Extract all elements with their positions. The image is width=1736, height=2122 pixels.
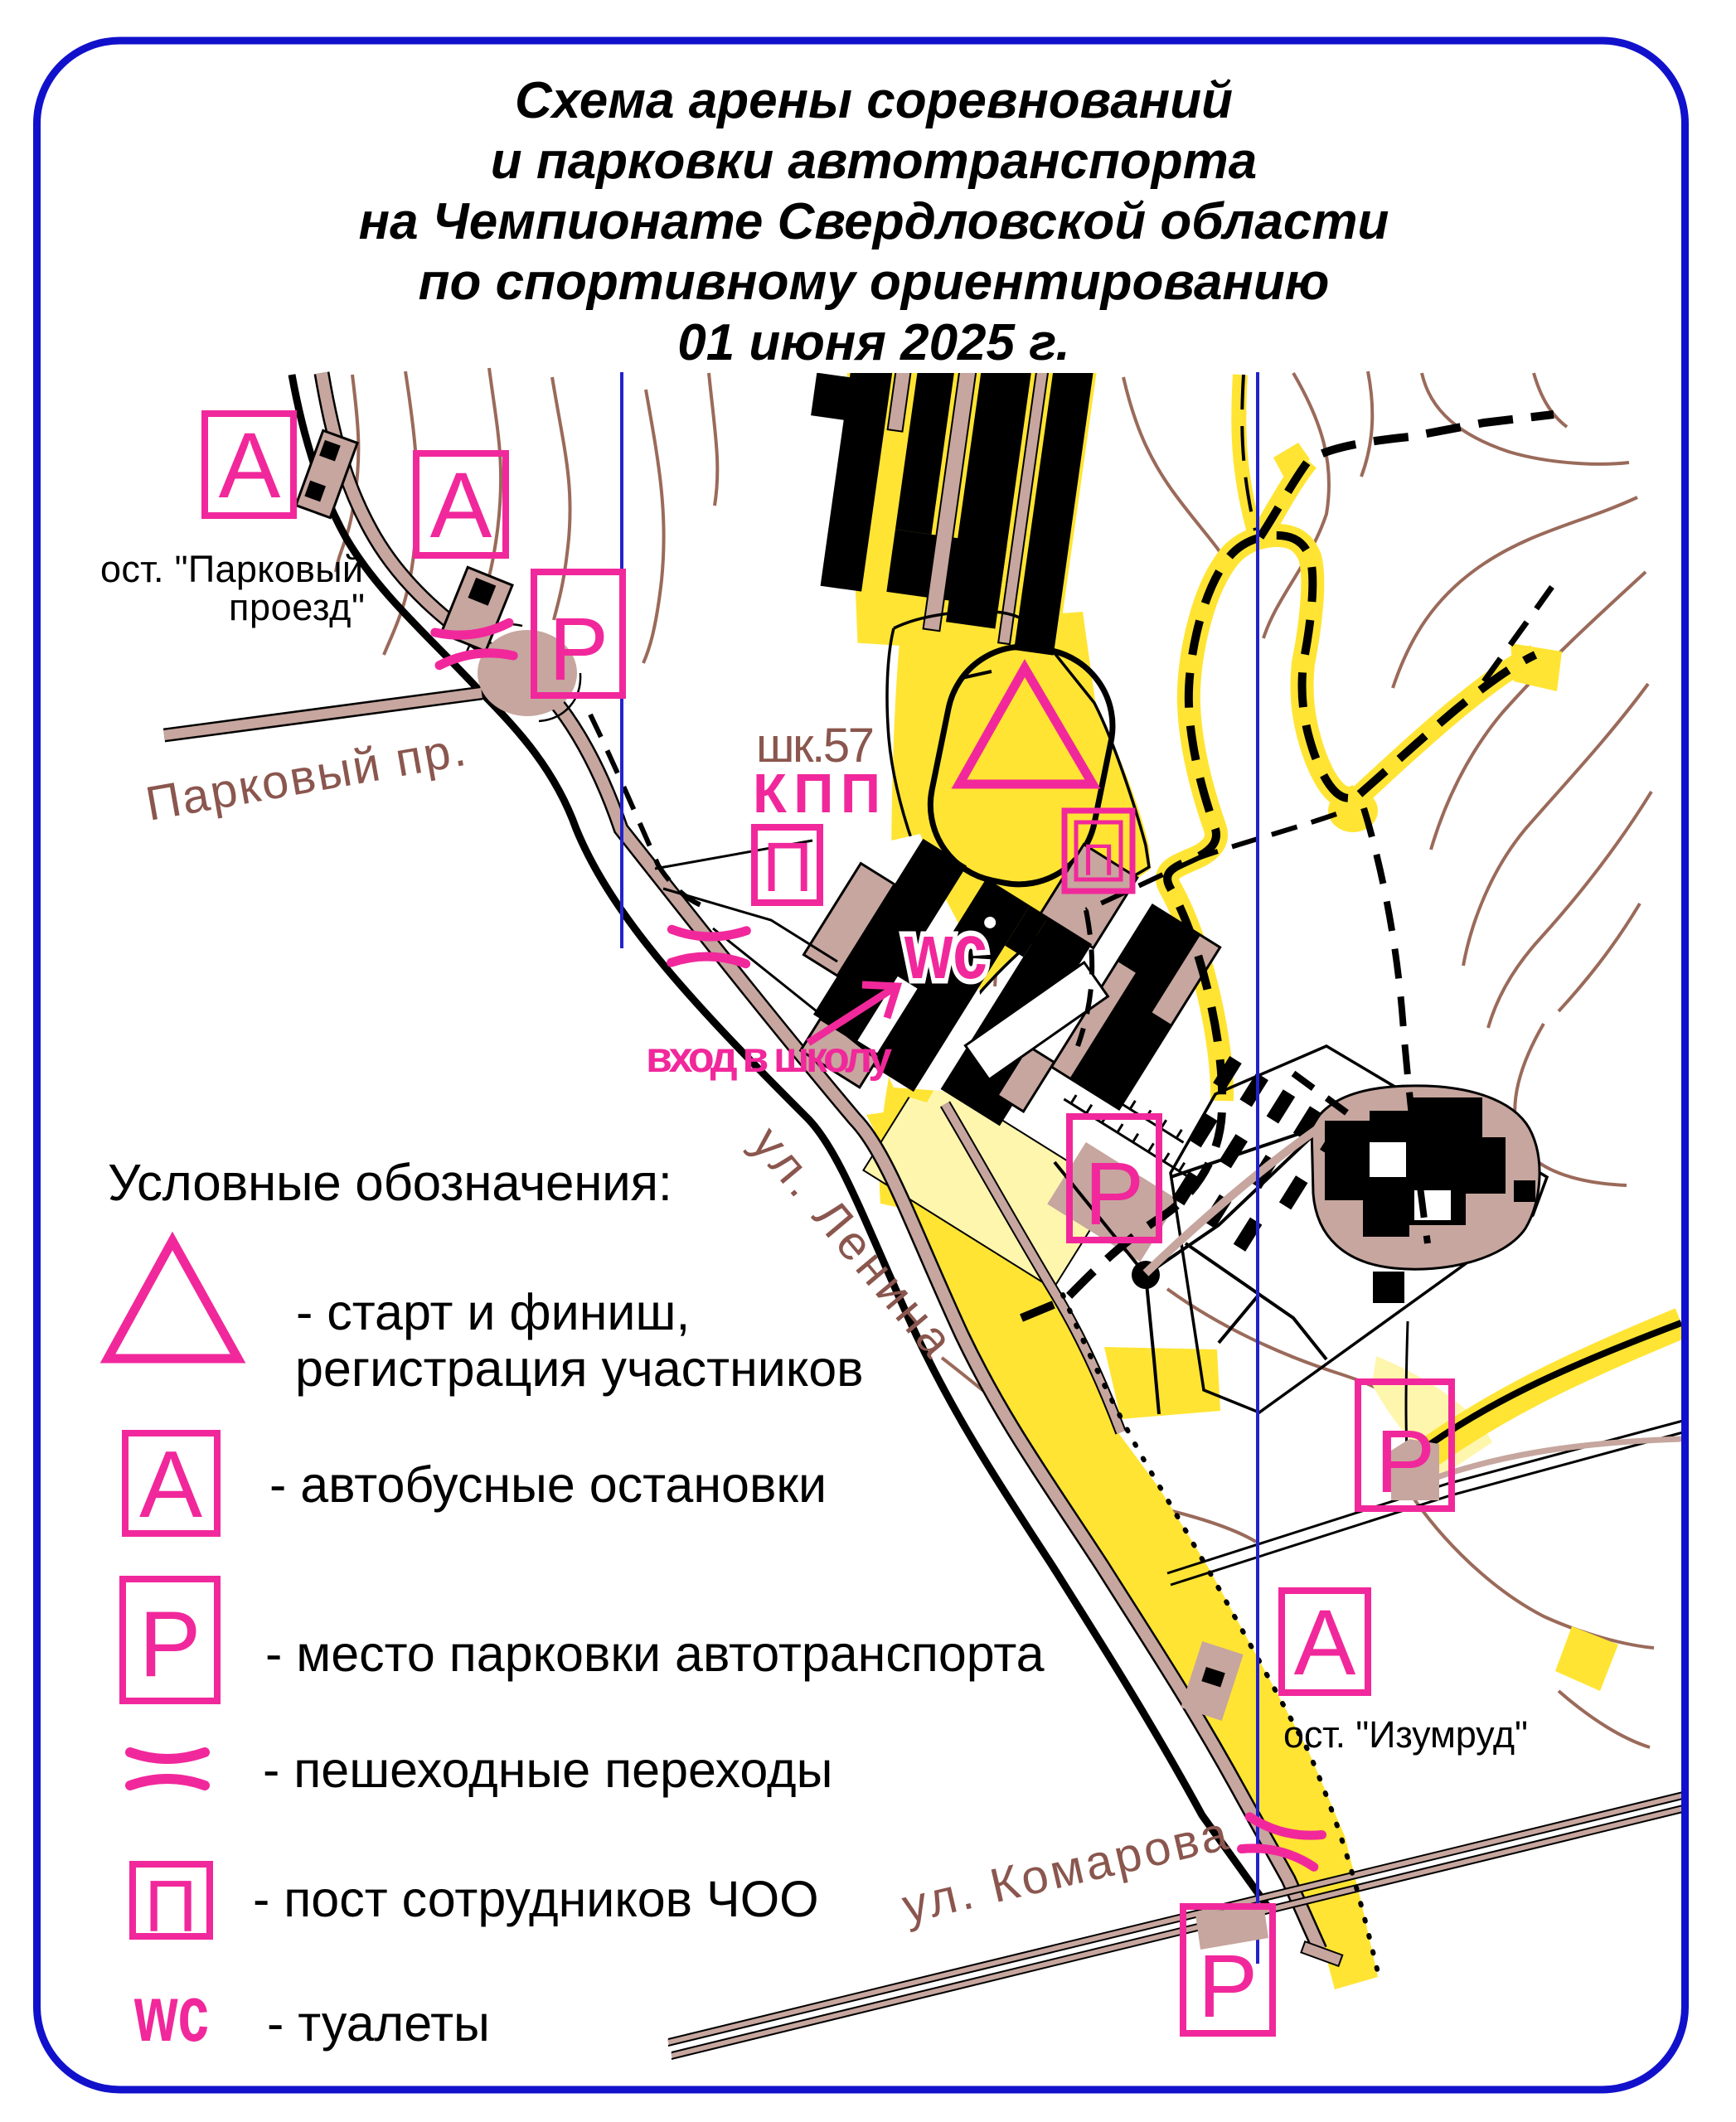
svg-text:по спортивному ориентированию: по спортивному ориентированию bbox=[419, 254, 1330, 311]
svg-text:А: А bbox=[139, 1432, 202, 1538]
svg-text:01 июня 2025 г.: 01 июня 2025 г. bbox=[677, 314, 1070, 371]
svg-text:шк.57: шк.57 bbox=[756, 719, 875, 773]
svg-text:- автобусные остановки: - автобусные остановки bbox=[269, 1456, 827, 1513]
svg-text:А: А bbox=[1294, 1591, 1356, 1694]
svg-text:Условные обозначения:: Условные обозначения: bbox=[108, 1155, 672, 1212]
svg-text:- пост сотрудников ЧОО: - пост сотрудников ЧОО bbox=[253, 1871, 819, 1927]
svg-text:wc: wc bbox=[904, 908, 987, 996]
svg-text:вход в школу: вход в школу bbox=[646, 1034, 892, 1082]
svg-text:ост. "Парковый: ост. "Парковый bbox=[100, 548, 363, 590]
svg-text:проезд": проезд" bbox=[229, 586, 365, 628]
svg-text:Р: Р bbox=[139, 1592, 201, 1696]
svg-text:и парковки автотранспорта: и парковки автотранспорта bbox=[491, 133, 1258, 190]
svg-text:Р: Р bbox=[1375, 1411, 1435, 1511]
svg-text:- место парковки автотранспорт: - место парковки автотранспорта bbox=[265, 1625, 1045, 1682]
svg-text:wc: wc bbox=[133, 1969, 209, 2058]
svg-text:регистрация участников: регистрация участников bbox=[295, 1340, 864, 1397]
svg-text:Р: Р bbox=[1084, 1143, 1144, 1243]
svg-text:- пешеходные переходы: - пешеходные переходы bbox=[263, 1742, 832, 1798]
svg-text:ост. "Изумруд": ост. "Изумруд" bbox=[1283, 1713, 1528, 1756]
svg-text:- старт и финиш,: - старт и финиш, bbox=[296, 1284, 690, 1340]
svg-text:- туалеты: - туалеты bbox=[267, 1995, 490, 2052]
svg-text:Р: Р bbox=[1198, 1935, 1258, 2036]
svg-text:А: А bbox=[219, 414, 281, 517]
svg-text:П: П bbox=[763, 828, 812, 906]
svg-text:А: А bbox=[430, 453, 492, 557]
svg-text:П: П bbox=[144, 1865, 196, 1947]
svg-text:Р: Р bbox=[549, 598, 609, 699]
svg-text:Схема арены соревнований: Схема арены соревнований bbox=[515, 72, 1233, 129]
svg-text:П: П bbox=[1083, 836, 1115, 885]
svg-text:на Чемпионате Свердловской обл: на Чемпионате Свердловской области bbox=[359, 193, 1389, 250]
